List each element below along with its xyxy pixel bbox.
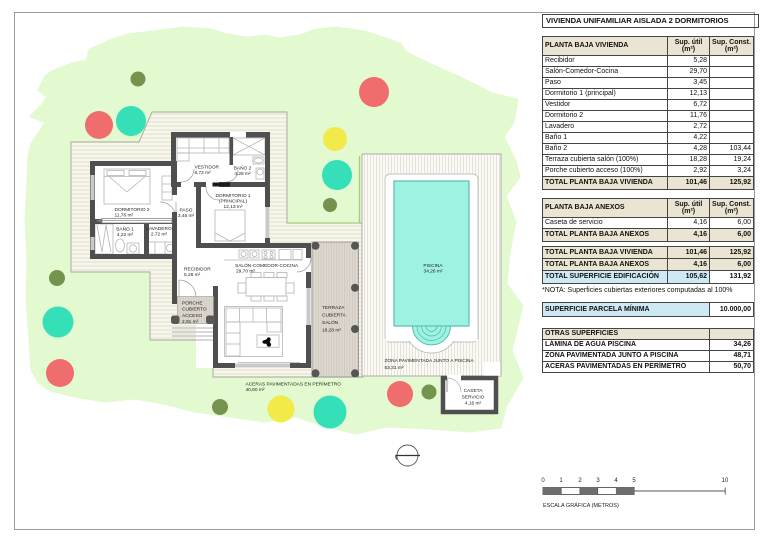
- svg-text:1: 1: [559, 478, 563, 484]
- svg-text:ACCESO: ACCESO: [182, 313, 203, 319]
- svg-text:CASETA: CASETA: [464, 388, 484, 394]
- svg-text:29,70 m²: 29,70 m²: [236, 269, 255, 275]
- svg-text:4: 4: [614, 478, 618, 484]
- svg-text:18,28 m²: 18,28 m²: [322, 328, 341, 334]
- svg-text:2,72 m²: 2,72 m²: [151, 232, 168, 238]
- svg-text:2,91 m²: 2,91 m²: [182, 319, 199, 325]
- svg-text:CUBIERTA: CUBIERTA: [322, 313, 347, 319]
- svg-text:3,45 m²: 3,45 m²: [178, 213, 195, 219]
- svg-text:10: 10: [722, 478, 729, 484]
- svg-text:4,16 m²: 4,16 m²: [465, 401, 482, 407]
- svg-text:4,22 m²: 4,22 m²: [117, 232, 134, 238]
- svg-text:PISCINA: PISCINA: [423, 263, 443, 269]
- svg-text:5: 5: [632, 478, 636, 484]
- svg-text:53,31 m²: 53,31 m²: [385, 365, 404, 371]
- svg-text:SALÓN: SALÓN: [322, 319, 339, 326]
- svg-text:BAÑO 1: BAÑO 1: [116, 226, 134, 233]
- svg-text:(PRINCIPAL): (PRINCIPAL): [219, 199, 248, 205]
- svg-text:ACERAS PAVIMENTADAS EN PERÍMET: ACERAS PAVIMENTADAS EN PERÍMETRO: [246, 381, 342, 388]
- svg-text:LAVADERO: LAVADERO: [146, 226, 172, 232]
- svg-text:TERRAZA: TERRAZA: [322, 305, 345, 311]
- svg-text:BAÑO 2: BAÑO 2: [234, 165, 252, 172]
- svg-text:34,26 m²: 34,26 m²: [424, 269, 443, 275]
- svg-text:3: 3: [596, 478, 600, 484]
- svg-text:ESCALA GRÁFICA (METROS): ESCALA GRÁFICA (METROS): [543, 502, 619, 509]
- svg-text:4,28 m²: 4,28 m²: [234, 171, 251, 177]
- svg-text:DORMITORIO 2: DORMITORIO 2: [115, 207, 150, 213]
- svg-text:40,60 m²: 40,60 m²: [246, 387, 265, 393]
- svg-text:DORMITORIO 1: DORMITORIO 1: [215, 193, 250, 199]
- svg-text:12,13 m²: 12,13 m²: [224, 204, 243, 210]
- svg-text:11,76 m²: 11,76 m²: [115, 213, 134, 219]
- svg-text:PASO: PASO: [180, 208, 193, 214]
- svg-text:CUBIERTO: CUBIERTO: [182, 307, 207, 313]
- svg-text:PORCHE: PORCHE: [182, 301, 203, 307]
- svg-text:SERVICIO: SERVICIO: [462, 395, 485, 401]
- svg-text:0: 0: [541, 478, 545, 484]
- svg-text:2: 2: [578, 478, 582, 484]
- svg-text:5,28 m²: 5,28 m²: [184, 272, 201, 278]
- svg-text:RECIBIDOR: RECIBIDOR: [184, 267, 211, 273]
- svg-text:SALÓN-COMEDOR-COCINA: SALÓN-COMEDOR-COCINA: [235, 262, 299, 269]
- svg-text:6,72 m²: 6,72 m²: [195, 170, 212, 176]
- svg-text:VESTIDOR: VESTIDOR: [195, 165, 220, 171]
- svg-text:ZONA PAVIMENTADA JUNTO A PISCI: ZONA PAVIMENTADA JUNTO A PISCINA: [385, 358, 475, 364]
